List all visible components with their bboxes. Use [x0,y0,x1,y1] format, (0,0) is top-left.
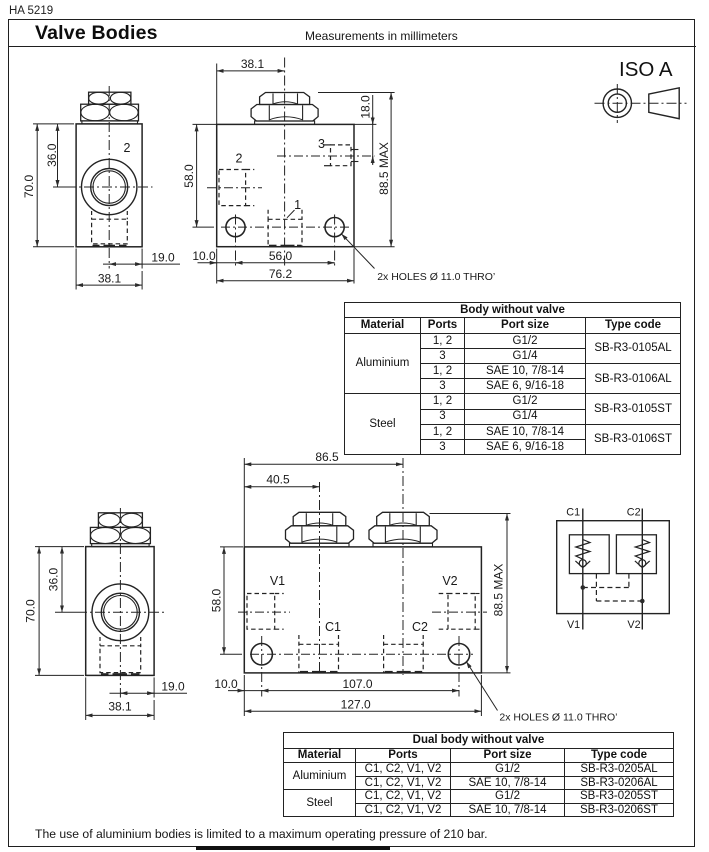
svg-text:2x HOLES Ø 11.0 THRO’: 2x HOLES Ø 11.0 THRO’ [377,271,495,283]
svg-text:36.0: 36.0 [47,567,61,591]
svg-text:56.0: 56.0 [269,249,293,263]
svg-text:86.5: 86.5 [315,450,339,464]
svg-text:10.0: 10.0 [214,677,238,691]
svg-text:3: 3 [318,137,325,151]
svg-text:127.0: 127.0 [341,698,371,712]
svg-text:V1: V1 [567,619,580,631]
svg-text:2: 2 [124,141,131,155]
svg-text:C1: C1 [566,506,580,518]
svg-text:70.0: 70.0 [24,599,38,623]
svg-text:58.0: 58.0 [182,164,196,188]
svg-text:40.5: 40.5 [266,473,290,487]
svg-text:19.0: 19.0 [151,251,175,265]
svg-text:19.0: 19.0 [161,680,185,694]
svg-text:38.1: 38.1 [108,699,132,713]
svg-text:36.0: 36.0 [45,143,59,167]
svg-text:V1: V1 [270,574,285,588]
svg-text:76.2: 76.2 [269,267,293,281]
svg-text:88.5 MAX: 88.5 MAX [377,142,391,195]
svg-text:ISO A: ISO A [619,58,673,81]
svg-text:2x HOLES Ø 11.0 THRO’: 2x HOLES Ø 11.0 THRO’ [499,712,617,724]
svg-text:C1: C1 [325,620,341,634]
svg-text:70.0: 70.0 [22,174,36,198]
svg-text:V2: V2 [442,574,457,588]
svg-text:58.0: 58.0 [210,588,224,612]
svg-text:V2: V2 [627,619,640,631]
svg-text:38.1: 38.1 [241,57,265,71]
svg-text:88.5 MAX: 88.5 MAX [492,564,506,617]
svg-text:C2: C2 [412,620,428,634]
svg-text:18.0: 18.0 [358,95,372,119]
svg-text:1: 1 [294,198,301,212]
svg-text:2: 2 [236,152,243,166]
svg-text:107.0: 107.0 [342,677,372,691]
svg-text:10.0: 10.0 [192,249,216,263]
svg-text:38.1: 38.1 [98,272,122,286]
svg-text:C2: C2 [627,506,641,518]
